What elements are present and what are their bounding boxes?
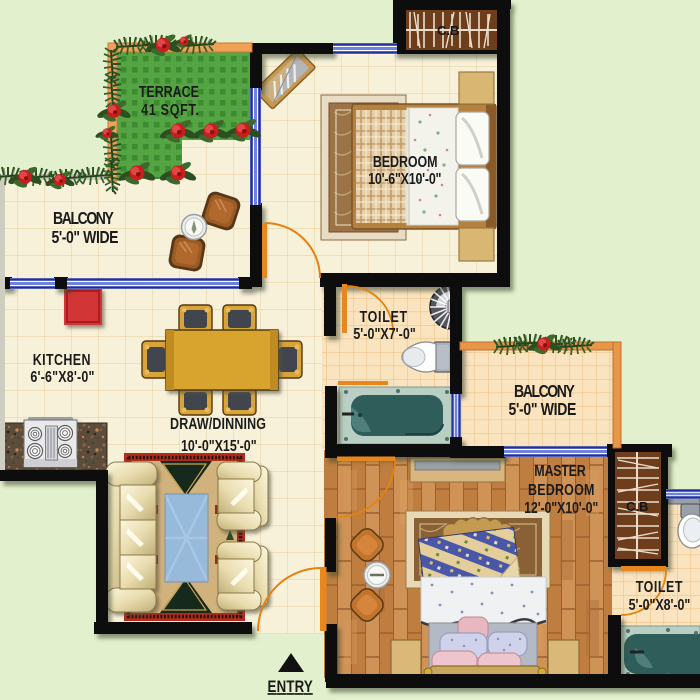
svg-text:C.B: C.B [626,499,648,514]
svg-text:5'-0"X7'-0": 5'-0"X7'-0" [353,326,415,344]
svg-text:ENTRY: ENTRY [268,678,313,697]
svg-text:5'-0" WIDE: 5'-0" WIDE [509,399,577,419]
svg-text:41 SQFT.: 41 SQFT. [141,102,199,120]
svg-text:BEDROOM: BEDROOM [528,482,594,500]
svg-text:5'-0"X8'-0": 5'-0"X8'-0" [629,597,691,615]
svg-text:TOILET: TOILET [360,309,408,327]
svg-text:TERRACE: TERRACE [139,84,199,102]
svg-text:TOILET: TOILET [636,579,683,597]
svg-text:12'-0"X10'-0": 12'-0"X10'-0" [524,500,598,518]
svg-text:BALCONY: BALCONY [53,208,114,228]
svg-text:10'-6"X10'-0": 10'-6"X10'-0" [368,171,441,189]
svg-text:BEDROOM: BEDROOM [373,154,438,172]
svg-text:C.B: C.B [437,23,459,38]
svg-text:KITCHEN: KITCHEN [33,352,91,370]
svg-text:DRAW/DINNING: DRAW/DINNING [170,416,266,434]
svg-text:6'-6"X8'-0": 6'-6"X8'-0" [30,369,94,387]
svg-text:MASTER: MASTER [534,463,586,481]
svg-text:5'-0" WIDE: 5'-0" WIDE [51,227,118,247]
svg-text:10'-0"X15'-0": 10'-0"X15'-0" [181,438,257,456]
